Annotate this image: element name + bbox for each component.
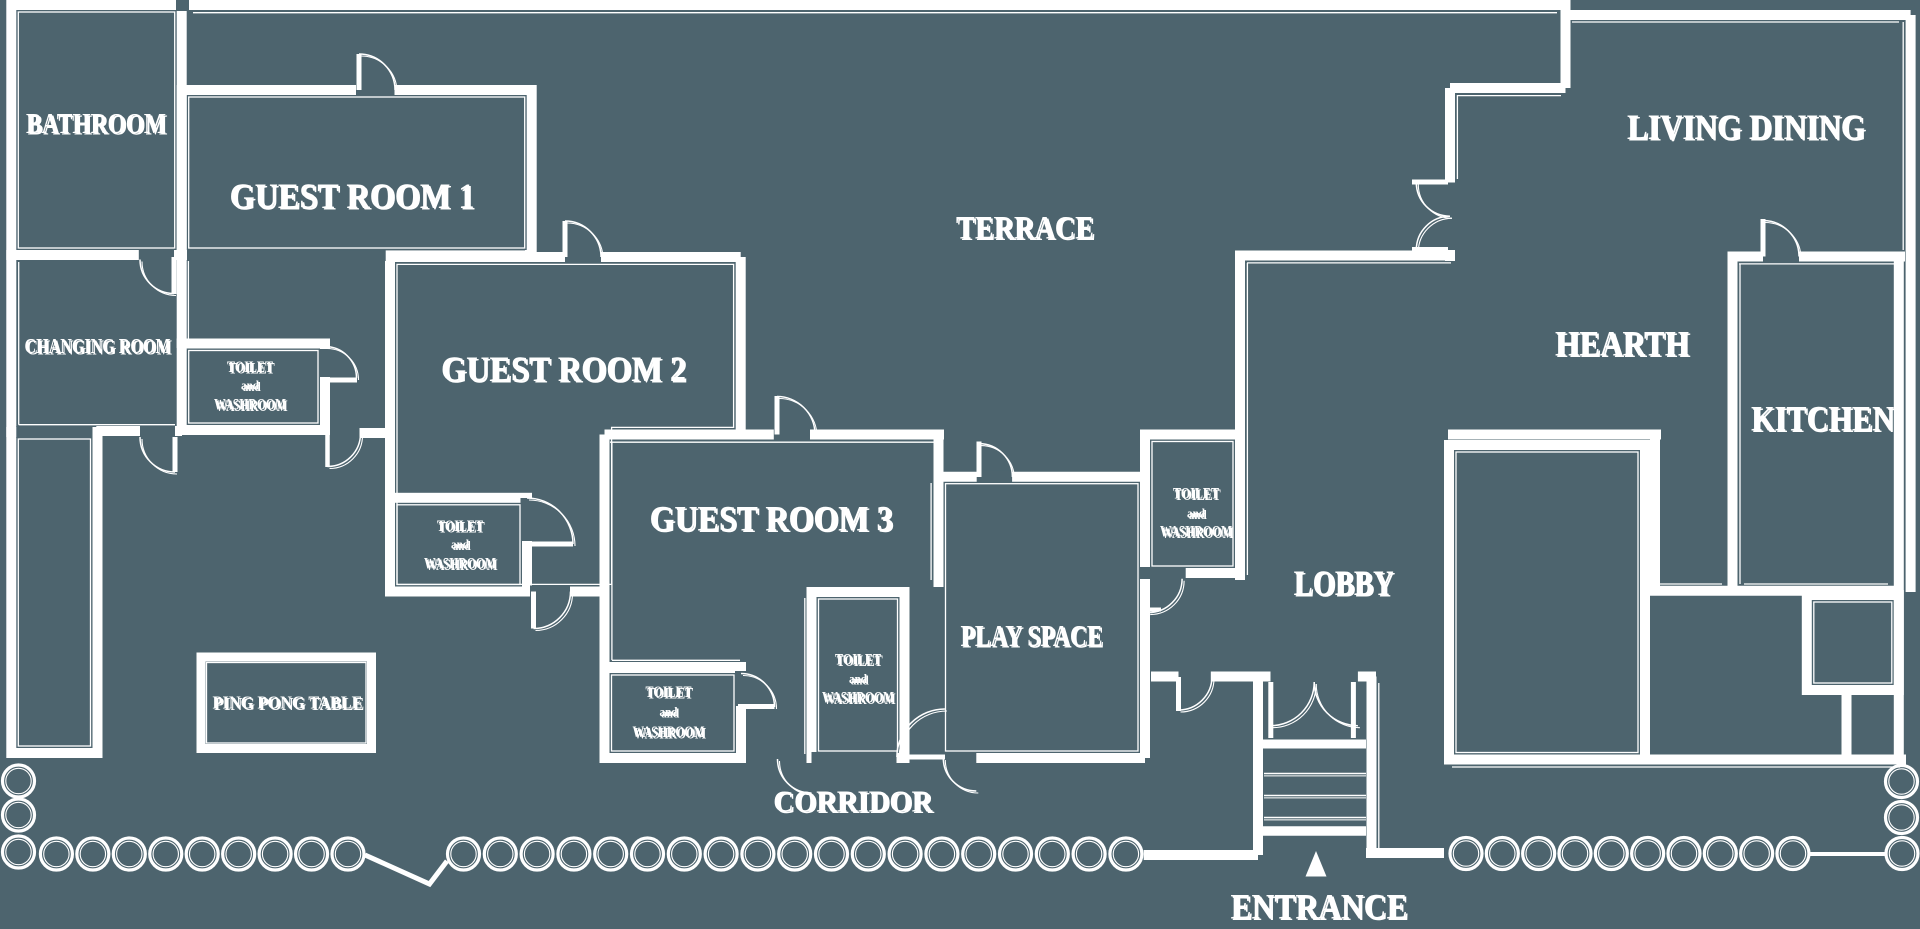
svg-text:TOILET: TOILET: [646, 684, 693, 701]
svg-text:WASHROOM: WASHROOM: [822, 690, 894, 707]
svg-text:and: and: [241, 379, 259, 393]
svg-text:LIVING DINING: LIVING DINING: [1627, 107, 1865, 147]
svg-text:TOILET: TOILET: [437, 518, 484, 535]
svg-text:PLAY SPACE: PLAY SPACE: [961, 618, 1103, 653]
svg-text:TOILET: TOILET: [227, 359, 274, 376]
svg-text:WASHROOM: WASHROOM: [1160, 524, 1232, 541]
svg-text:ENTRANCE: ENTRANCE: [1231, 887, 1408, 927]
svg-text:KITCHEN: KITCHEN: [1751, 399, 1894, 439]
svg-text:TOILET: TOILET: [1173, 486, 1220, 503]
svg-text:PING PONG TABLE: PING PONG TABLE: [213, 693, 363, 713]
svg-text:LOBBY: LOBBY: [1294, 563, 1394, 603]
svg-text:WASHROOM: WASHROOM: [633, 724, 705, 741]
svg-text:CORRIDOR: CORRIDOR: [773, 784, 933, 819]
svg-text:and: and: [849, 672, 867, 686]
svg-text:and: and: [1187, 507, 1205, 521]
svg-text:GUEST ROOM 3: GUEST ROOM 3: [650, 499, 893, 539]
svg-text:and: and: [660, 705, 678, 719]
svg-text:GUEST ROOM 2: GUEST ROOM 2: [441, 349, 686, 389]
svg-text:BATHROOM: BATHROOM: [26, 108, 166, 140]
svg-text:TERRACE: TERRACE: [956, 211, 1094, 247]
svg-text:WASHROOM: WASHROOM: [424, 556, 496, 573]
svg-text:CHANGING ROOM: CHANGING ROOM: [25, 334, 171, 358]
svg-text:TOILET: TOILET: [835, 652, 882, 669]
svg-text:HEARTH: HEARTH: [1555, 324, 1689, 364]
svg-text:WASHROOM: WASHROOM: [214, 397, 286, 414]
svg-text:and: and: [451, 538, 469, 552]
svg-text:GUEST ROOM 1: GUEST ROOM 1: [230, 176, 475, 216]
